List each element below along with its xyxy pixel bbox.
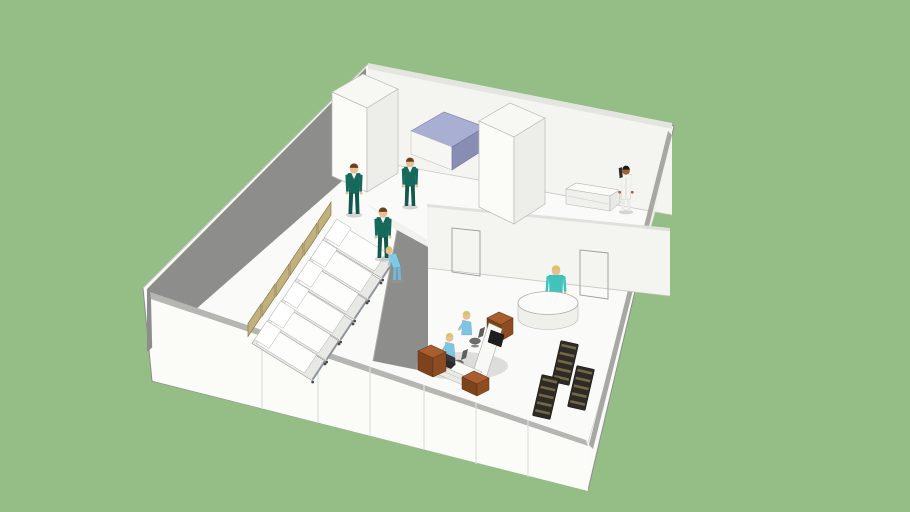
hospital-bed-5-caster-1 (338, 343, 341, 346)
nurse-bending-shadow (390, 279, 404, 284)
doctor-hand-right (631, 191, 634, 194)
storage-block-2-left-face (479, 121, 514, 224)
office-chair-1-seat (470, 338, 481, 344)
nurse-bending-leg-left (393, 267, 397, 280)
screenshot-root (0, 0, 910, 512)
receptionist-1-hand (458, 328, 460, 330)
hospital-bed-4-caster-1 (352, 323, 355, 326)
hospital-bed-2-caster-1 (380, 282, 383, 285)
nurse-walking-3-shadow (375, 256, 391, 261)
nurse-walking-1-hand-right (360, 192, 363, 195)
hospital-bed-3-caster-2 (353, 320, 356, 323)
office-chair-1-base (471, 345, 479, 348)
nurse-bending-hand (388, 264, 390, 266)
nurse-bending-leg-right (398, 267, 402, 280)
hospital-bed-3-caster-1 (366, 302, 369, 305)
doctor-shadow (619, 210, 634, 215)
nurse-walking-1-shadow (346, 212, 362, 217)
model-viewport (0, 0, 910, 512)
round-table-top (518, 292, 578, 315)
nurse-walking-1-hand-left (345, 192, 348, 195)
nurse-walking-2-hand-right (415, 184, 418, 187)
nurse-walking-2-shadow (402, 204, 418, 209)
nurse-walking-3-hand-left (374, 236, 377, 239)
doctor-hand-left (618, 191, 621, 194)
hospital-bed-1-caster-2 (381, 279, 384, 282)
hospital-bed-6-caster-1 (324, 363, 327, 366)
nurse-walking-3-hand-right (389, 236, 392, 239)
hospital-bed-6-caster-2 (311, 381, 314, 384)
nurse-walking-2-hand-left (402, 184, 405, 187)
